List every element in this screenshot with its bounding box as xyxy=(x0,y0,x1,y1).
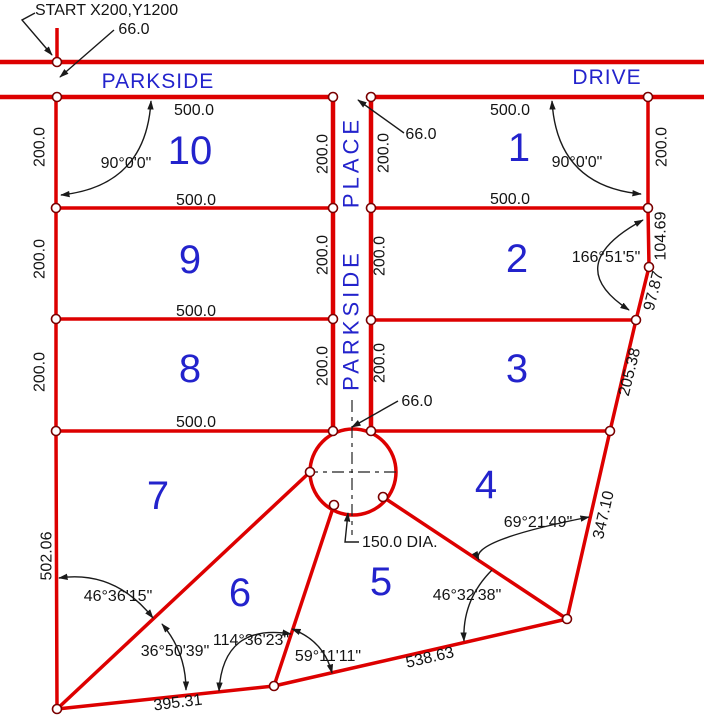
vertex-node xyxy=(379,493,388,502)
street-name-parkside: PARKSIDE xyxy=(102,70,215,93)
dim-frontage-lot1-top: 500.0 xyxy=(490,102,530,119)
vertex-node-start xyxy=(53,58,62,67)
angle-lot6-south: 114°36'23" xyxy=(213,632,289,649)
vertex-node xyxy=(52,315,61,324)
vertex-node xyxy=(52,427,61,436)
dim-depth-lot10-west: 200.0 xyxy=(32,127,49,167)
vertex-node xyxy=(329,315,338,324)
start-annotation: START X200,Y1200 xyxy=(35,2,178,19)
street-width-label-mid: 66.0 xyxy=(405,126,436,143)
angle-lot1-northeast: 90°0'0" xyxy=(552,154,603,171)
dim-frontage-lot1-bottom: 500.0 xyxy=(490,191,530,208)
vertex-node xyxy=(53,93,62,102)
plat-survey-drawing: START X200,Y1200 66.0 66.0 66.0 150.0 DI… xyxy=(0,0,704,717)
lot-number-10: 10 xyxy=(168,129,213,173)
dim-south-boundary-east: 538.63 xyxy=(404,644,456,672)
street-width-leader-bottom xyxy=(352,401,398,427)
vertex-node xyxy=(644,204,653,213)
vertex-node xyxy=(329,204,338,213)
street-width-label-bottom: 66.0 xyxy=(401,393,432,410)
vertex-node xyxy=(632,316,641,325)
vertex-node xyxy=(329,93,338,102)
dim-east-boundary-bend: 97.87 xyxy=(641,269,667,312)
vertex-node xyxy=(270,682,279,691)
dim-frontage-lot9-bottom: 500.0 xyxy=(176,303,216,320)
dim-depth-lot10-east: 200.0 xyxy=(315,134,332,174)
dim-depth-lot3-west: 200.0 xyxy=(372,343,389,383)
dim-depth-lot9-west: 200.0 xyxy=(32,239,49,279)
street-name-parkside-vertical: PARKSIDE xyxy=(339,249,364,391)
lot-number-3: 3 xyxy=(506,347,528,391)
street-width-leader-mid xyxy=(358,100,404,133)
angle-arc-lot5-east xyxy=(464,570,492,641)
dim-depth-lot9-east: 200.0 xyxy=(315,235,332,275)
vertex-node xyxy=(329,427,338,436)
lot-number-9: 9 xyxy=(179,238,201,282)
street-width-label-top: 66.0 xyxy=(118,21,149,38)
vertex-node xyxy=(53,705,62,714)
vertex-node xyxy=(52,204,61,213)
vertex-node xyxy=(367,204,376,213)
dim-depth-lot8-east: 200.0 xyxy=(315,346,332,386)
dim-east-boundary-mid: 205.38 xyxy=(616,346,644,398)
lot-number-6: 6 xyxy=(229,571,251,615)
lot-number-7: 7 xyxy=(147,474,169,518)
dim-east-boundary-upper: 104.69 xyxy=(653,211,670,260)
vertex-node xyxy=(367,316,376,325)
dim-south-boundary-west: 395.31 xyxy=(153,692,204,715)
vertex-node xyxy=(563,615,572,624)
dim-frontage-lot10-bottom: 500.0 xyxy=(176,192,216,209)
street-name-drive: DRIVE xyxy=(572,66,641,89)
plat-canvas: START X200,Y1200 66.0 66.0 66.0 150.0 DI… xyxy=(0,0,704,717)
angle-arc-lot10 xyxy=(61,101,151,195)
lot-number-1: 1 xyxy=(508,126,530,170)
angle-arc-lot1 xyxy=(552,101,641,194)
vertex-node xyxy=(330,501,339,510)
vertex-node xyxy=(606,427,615,436)
angle-lot4-southeast: 69°21'49" xyxy=(504,514,573,531)
labels: START X200,Y1200 66.0 66.0 66.0 150.0 DI… xyxy=(32,2,671,714)
lot-number-5: 5 xyxy=(370,560,392,604)
angle-lot10-northwest: 90°0'0" xyxy=(101,155,152,172)
diameter-leader-arrow xyxy=(345,513,359,542)
angle-lot6-southwest: 36°50'39" xyxy=(141,643,210,660)
dim-west-boundary: 502.06 xyxy=(39,531,56,580)
vertex-node xyxy=(644,93,653,102)
lot-number-8: 8 xyxy=(179,347,201,391)
start-leader-arrow xyxy=(22,13,52,55)
cul-de-sac-diameter-label: 150.0 DIA. xyxy=(362,534,438,551)
angle-lot5-southwest: 59°11'11" xyxy=(295,648,361,665)
dim-depth-lot2-west: 200.0 xyxy=(372,236,389,276)
angle-lot7-southwest: 46°36'15" xyxy=(84,588,153,605)
lot-number-4: 4 xyxy=(475,463,497,507)
angle-east-bend: 166°51'5" xyxy=(572,249,641,266)
vertex-node xyxy=(306,468,315,477)
west-boundary-line xyxy=(56,97,57,709)
vertex-node xyxy=(367,427,376,436)
dim-frontage-lot8-bottom: 500.0 xyxy=(176,414,216,431)
lot-number-2: 2 xyxy=(506,237,528,281)
dim-depth-lot1-east: 200.0 xyxy=(654,127,671,167)
vertex-node xyxy=(367,93,376,102)
dim-depth-lot8-west: 200.0 xyxy=(32,352,49,392)
dim-depth-lot1-west: 200.0 xyxy=(376,133,393,173)
street-name-place-vertical: PLACE xyxy=(339,116,364,208)
angle-lot5-southeast: 46°32'38" xyxy=(433,587,502,604)
dim-frontage-lot10-top: 500.0 xyxy=(174,102,214,119)
